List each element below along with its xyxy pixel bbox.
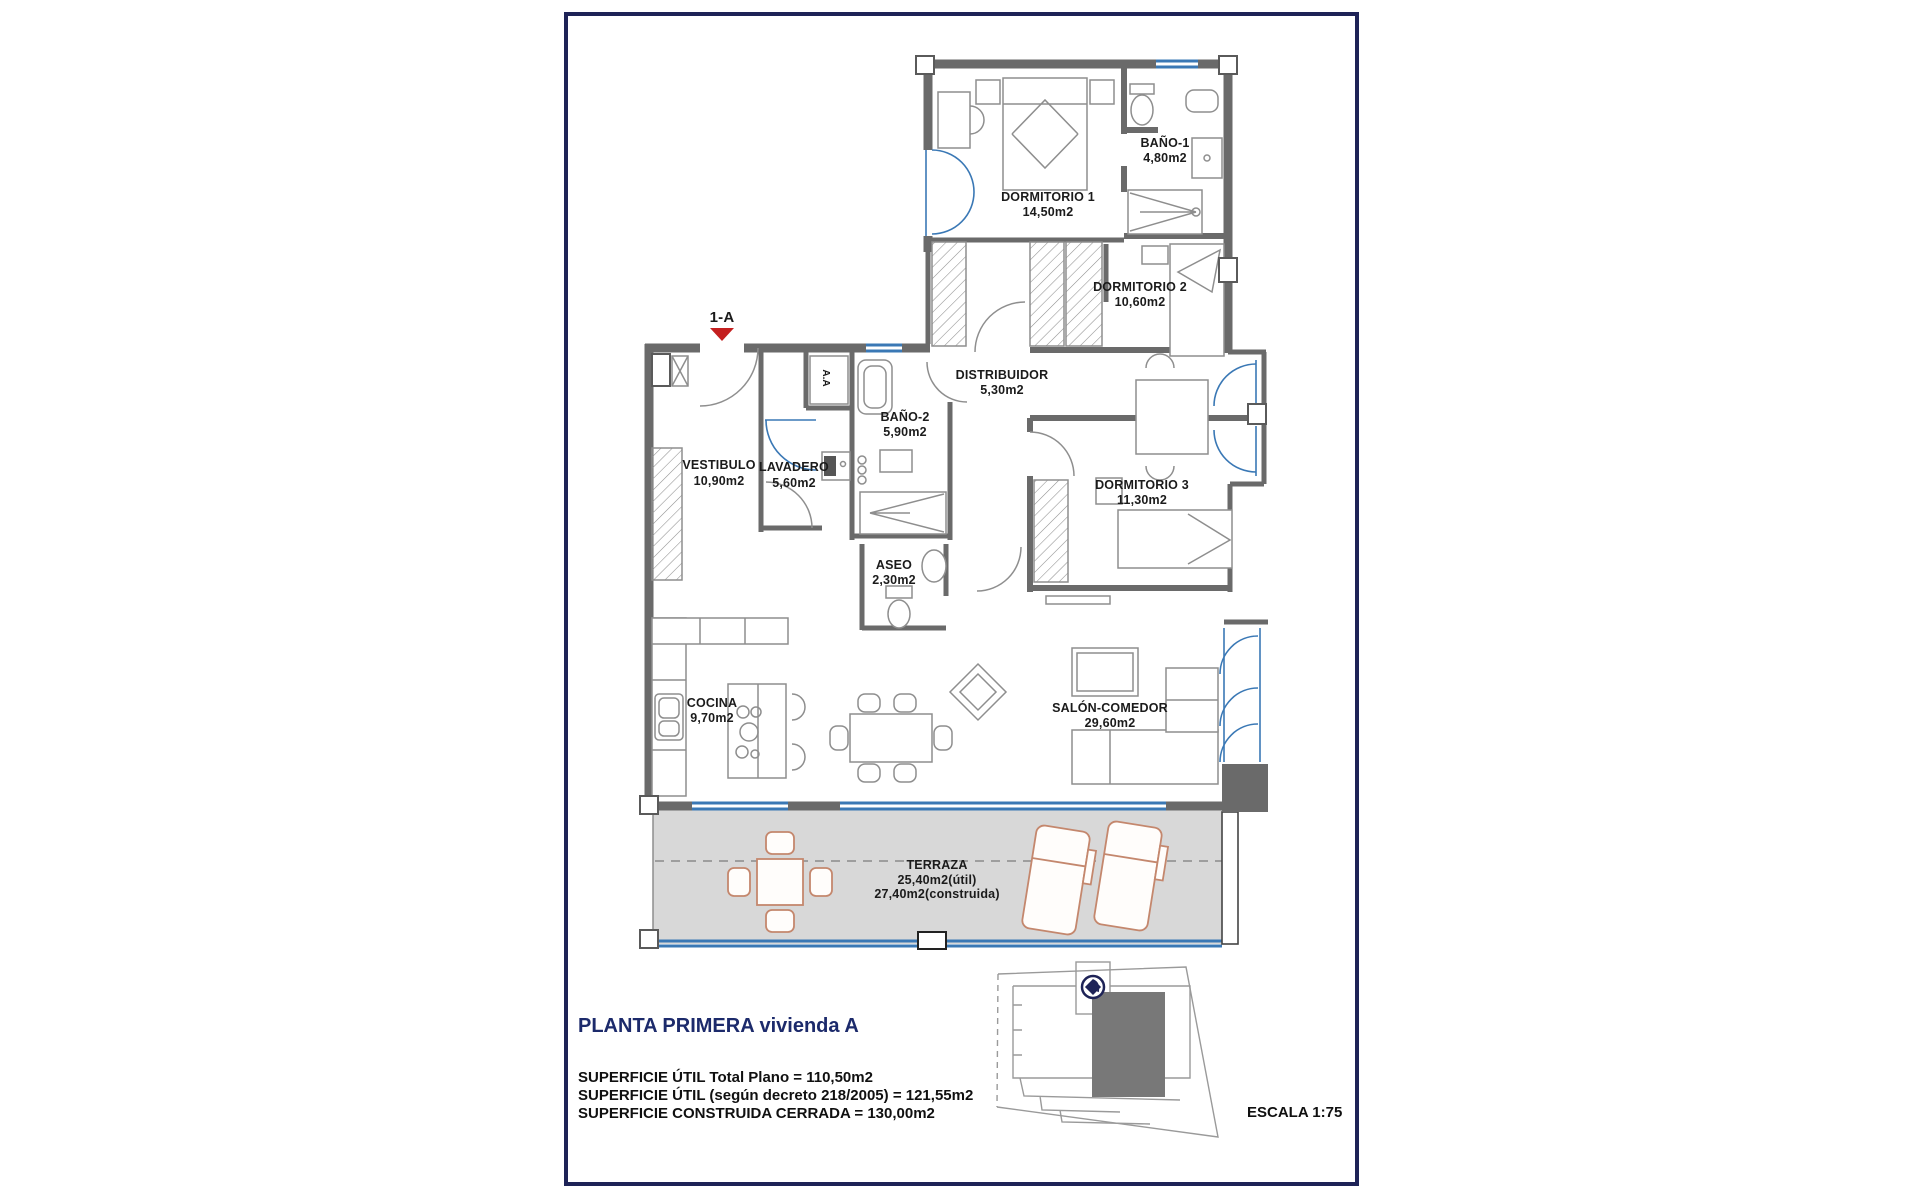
- svg-text:VESTIBULO: VESTIBULO: [682, 458, 755, 472]
- svg-text:DORMITORIO 2: DORMITORIO 2: [1093, 280, 1187, 294]
- svg-text:25,40m2(útil): 25,40m2(útil): [897, 873, 976, 887]
- room-label-cocina: COCINA 9,70m2: [687, 696, 738, 725]
- svg-text:SALÓN-COMEDOR: SALÓN-COMEDOR: [1052, 700, 1168, 715]
- unit-marker-label: 1-A: [710, 309, 735, 326]
- surface-line: SUPERFICIE ÚTIL Total Plano = 110,50m2: [578, 1068, 873, 1086]
- svg-text:DORMITORIO 3: DORMITORIO 3: [1095, 478, 1189, 492]
- svg-text:ASEO: ASEO: [876, 558, 912, 572]
- floor-plan-sheet: DORMITORIO 1 14,50m2 BAÑO-1 4,80m2 DORMI…: [0, 0, 1920, 1200]
- svg-text:2,30m2: 2,30m2: [872, 573, 916, 587]
- ac-unit-label: A.A: [820, 369, 831, 386]
- room-label-aseo: ASEO 2,30m2: [872, 558, 916, 587]
- svg-text:COCINA: COCINA: [687, 696, 738, 710]
- svg-text:11,30m2: 11,30m2: [1117, 493, 1167, 507]
- svg-text:10,60m2: 10,60m2: [1115, 295, 1166, 309]
- svg-text:4,80m2: 4,80m2: [1143, 151, 1187, 165]
- svg-text:10,90m2: 10,90m2: [694, 474, 745, 488]
- scale-label: ESCALA 1:75: [1247, 1104, 1342, 1121]
- svg-text:LAVADERO: LAVADERO: [759, 460, 829, 474]
- svg-text:5,90m2: 5,90m2: [883, 425, 927, 439]
- svg-text:27,40m2(construida): 27,40m2(construida): [874, 887, 999, 901]
- svg-text:DORMITORIO 1: DORMITORIO 1: [1001, 190, 1095, 204]
- surface-line: SUPERFICIE CONSTRUIDA CERRADA = 130,00m2: [578, 1105, 935, 1122]
- floor-plan-drawing: DORMITORIO 1 14,50m2 BAÑO-1 4,80m2 DORMI…: [0, 0, 1920, 1200]
- svg-text:9,70m2: 9,70m2: [690, 711, 734, 725]
- svg-text:BAÑO-1: BAÑO-1: [1140, 135, 1189, 150]
- svg-text:5,30m2: 5,30m2: [980, 383, 1024, 397]
- plan-title: PLANTA PRIMERA vivienda A: [578, 1015, 859, 1037]
- surface-line: SUPERFICIE ÚTIL (según decreto 218/2005)…: [578, 1086, 973, 1104]
- svg-text:5,60m2: 5,60m2: [772, 476, 816, 490]
- svg-text:14,50m2: 14,50m2: [1023, 205, 1074, 219]
- svg-text:29,60m2: 29,60m2: [1085, 716, 1136, 730]
- sheet-border: [566, 14, 1357, 1184]
- svg-text:TERRAZA: TERRAZA: [906, 858, 967, 872]
- svg-text:BAÑO-2: BAÑO-2: [880, 409, 929, 424]
- svg-text:DISTRIBUIDOR: DISTRIBUIDOR: [956, 368, 1049, 382]
